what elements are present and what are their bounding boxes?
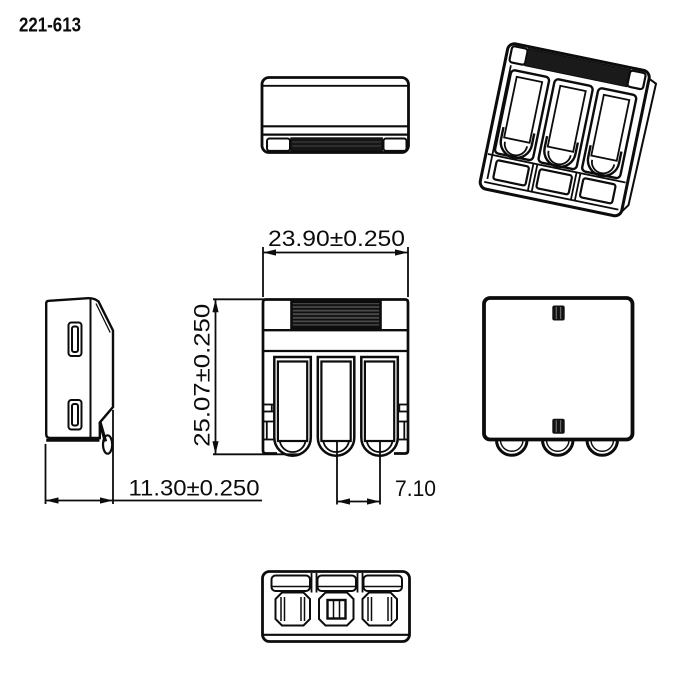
svg-text:11.30±0.250: 11.30±0.250	[129, 476, 260, 501]
svg-text:23.90±0.250: 23.90±0.250	[268, 226, 405, 251]
svg-text:7.10: 7.10	[395, 476, 436, 501]
svg-text:221-613: 221-613	[19, 14, 81, 37]
svg-text:25.07±0.250: 25.07±0.250	[190, 304, 215, 447]
